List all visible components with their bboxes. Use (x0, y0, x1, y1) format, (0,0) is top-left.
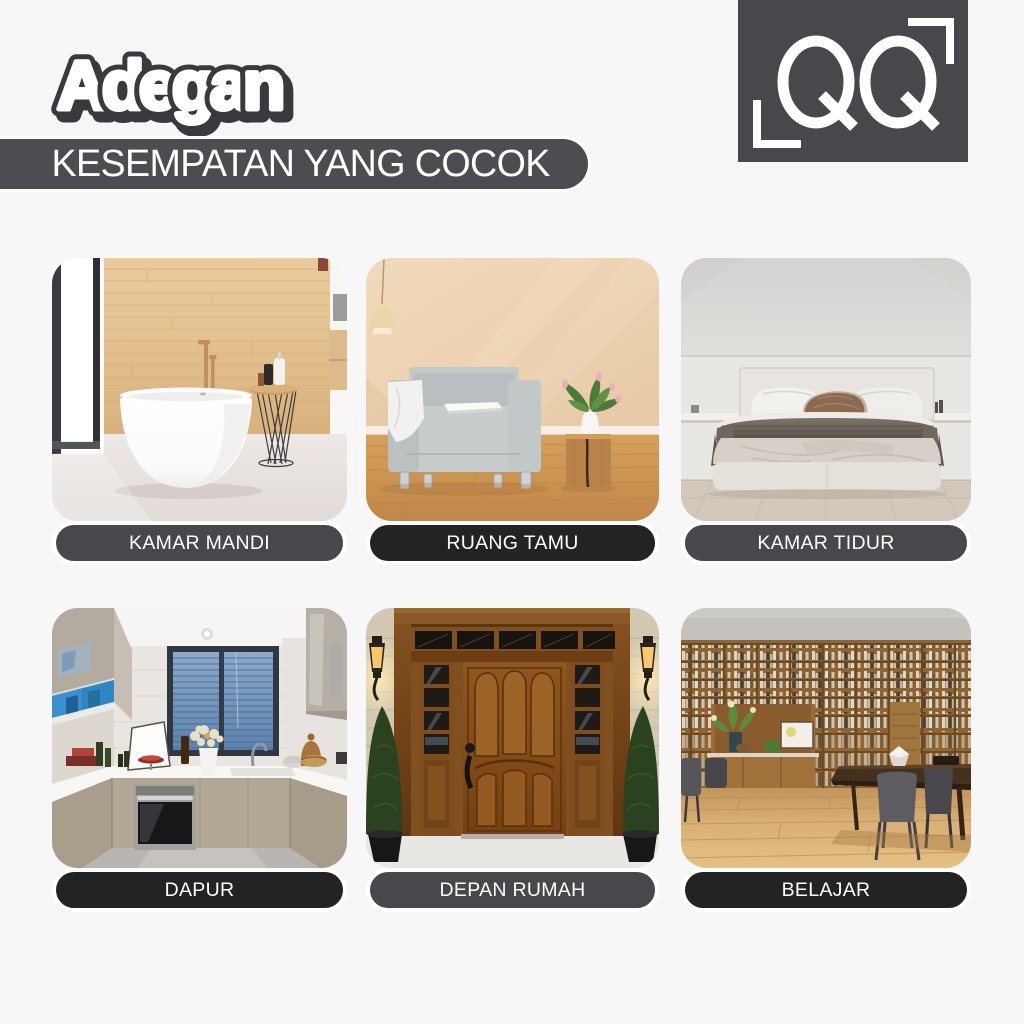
svg-text:g: g (172, 47, 214, 124)
svg-text:A: A (57, 47, 107, 124)
svg-text:d: d (102, 47, 144, 124)
svg-text:n: n (243, 47, 285, 124)
